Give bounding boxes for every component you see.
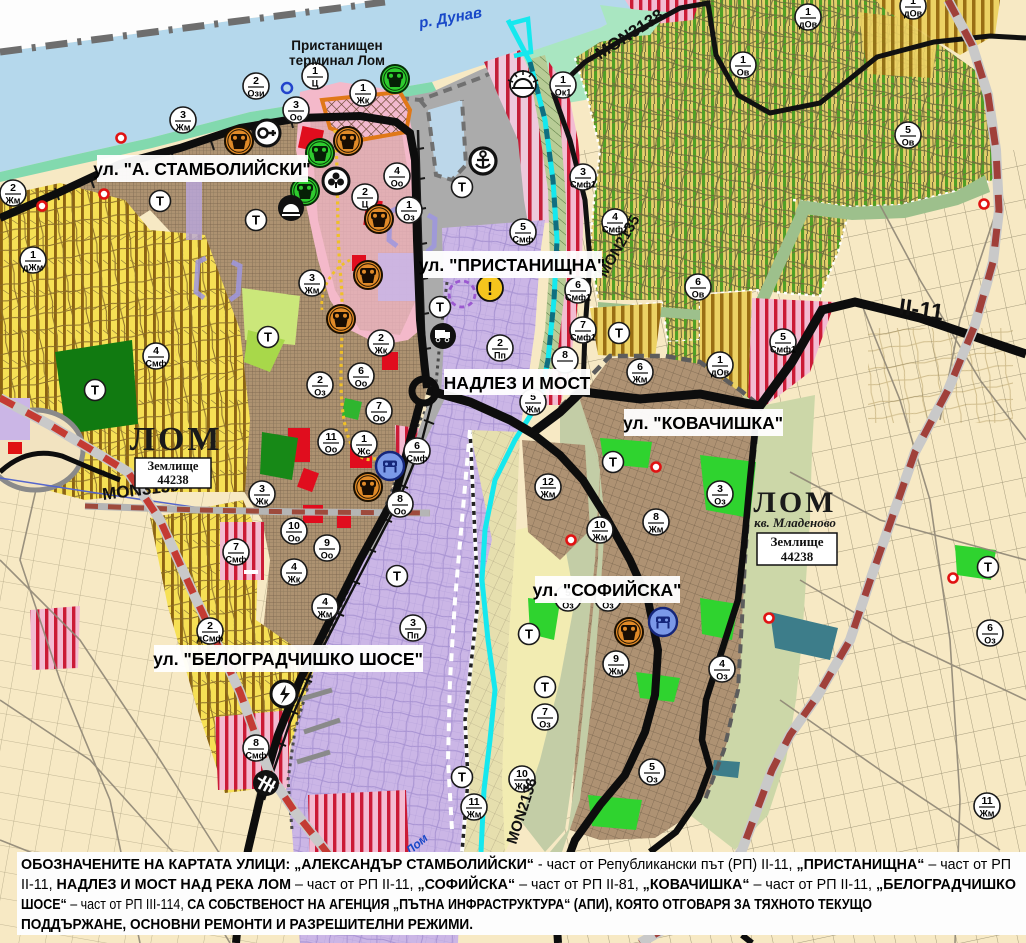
svg-text:8: 8 <box>253 737 259 749</box>
svg-text:11: 11 <box>468 796 479 808</box>
svg-text:5: 5 <box>905 124 911 136</box>
svg-text:Т: Т <box>91 383 99 398</box>
svg-text:Жм: Жм <box>540 490 556 500</box>
svg-text:6: 6 <box>414 440 420 452</box>
svg-text:Смф1: Смф1 <box>770 345 796 355</box>
svg-text:Оз: Оз <box>314 388 326 398</box>
svg-text:Ов: Ов <box>737 68 750 78</box>
svg-text:Оз: Оз <box>716 672 728 682</box>
svg-text:Ов: Ов <box>902 138 915 148</box>
svg-text:Оз: Оз <box>984 636 996 646</box>
svg-text:1: 1 <box>360 82 366 94</box>
svg-text:Т: Т <box>393 569 401 584</box>
svg-text:6: 6 <box>987 622 993 634</box>
svg-text:2: 2 <box>497 337 503 349</box>
svg-text:2: 2 <box>378 332 384 344</box>
svg-text:Жм: Жм <box>979 809 995 819</box>
svg-text:3: 3 <box>180 109 186 121</box>
svg-text:2: 2 <box>253 75 259 87</box>
svg-text:Смф1: Смф1 <box>570 333 596 343</box>
svg-text:11: 11 <box>325 431 336 443</box>
svg-text:44238: 44238 <box>781 549 814 564</box>
svg-text:Землище: Землище <box>770 534 823 549</box>
svg-text:7: 7 <box>233 541 239 553</box>
svg-text:Смф1: Смф1 <box>570 180 596 190</box>
svg-text:Пристанищен: Пристанищен <box>291 38 382 53</box>
svg-text:8: 8 <box>562 349 568 361</box>
svg-text:кв. Младеново: кв. Младеново <box>754 515 836 530</box>
svg-text:дСмф: дСмф <box>197 634 224 644</box>
svg-text:ПОДДЪРЖАНЕ, ОСНОВНИ РЕМОНТИ И: ПОДДЪРЖАНЕ, ОСНОВНИ РЕМОНТИ И РАЗРЕШИТЕЛ… <box>21 916 473 933</box>
svg-text:Оо: Оо <box>373 414 386 424</box>
svg-text:8: 8 <box>397 493 403 505</box>
svg-text:Смф1: Смф1 <box>565 293 591 303</box>
svg-text:дОв: дОв <box>711 368 730 378</box>
svg-text:Землище: Землище <box>148 459 199 473</box>
svg-text:Ози: Ози <box>247 89 264 99</box>
svg-text:5: 5 <box>520 221 526 233</box>
svg-text:ЛОМ: ЛОМ <box>130 421 223 458</box>
svg-text:12: 12 <box>542 476 554 488</box>
svg-text:3: 3 <box>259 483 265 495</box>
svg-text:Т: Т <box>984 560 992 575</box>
svg-text:7: 7 <box>580 319 586 331</box>
svg-text:Оз: Оз <box>646 775 658 785</box>
svg-text:!: ! <box>487 279 493 299</box>
svg-text:8: 8 <box>653 511 659 523</box>
svg-text:7: 7 <box>376 400 382 412</box>
svg-text:Оо: Оо <box>290 113 303 123</box>
svg-text:Ок1: Ок1 <box>555 88 572 98</box>
svg-text:1: 1 <box>560 74 566 86</box>
svg-text:Ц: Ц <box>362 200 369 210</box>
svg-text:Оо: Оо <box>325 445 338 455</box>
svg-text:Оо: Оо <box>288 534 301 544</box>
svg-text:дОв: дОв <box>904 9 923 19</box>
svg-text:Оо: Оо <box>391 179 404 189</box>
svg-text:Жм: Жм <box>466 810 482 820</box>
svg-text:Т: Т <box>609 455 617 470</box>
svg-text:Смф: Смф <box>246 751 267 761</box>
svg-text:1: 1 <box>910 0 916 7</box>
svg-text:дОв: дОв <box>799 20 818 30</box>
svg-text:Жк: Жк <box>356 96 370 106</box>
svg-text:Т: Т <box>252 213 260 228</box>
svg-text:1: 1 <box>361 433 367 445</box>
svg-text:дЖм: дЖм <box>23 263 44 273</box>
svg-text:Т: Т <box>156 194 164 209</box>
svg-text:Смф: Смф <box>146 359 167 369</box>
svg-text:терминал Лом: терминал Лом <box>289 53 385 68</box>
svg-text:10: 10 <box>594 519 606 531</box>
svg-text:Т: Т <box>458 180 466 195</box>
svg-text:Пп: Пп <box>494 351 506 361</box>
svg-text:Оз: Оз <box>714 497 726 507</box>
svg-text:Оз: Оз <box>403 213 415 223</box>
svg-text:3: 3 <box>293 99 299 111</box>
svg-text:2: 2 <box>207 620 213 632</box>
svg-text:ул. "БЕЛОГРАДЧИШКО ШОСЕ": ул. "БЕЛОГРАДЧИШКО ШОСЕ" <box>153 649 423 669</box>
svg-text:2: 2 <box>362 186 368 198</box>
svg-text:6: 6 <box>637 361 643 373</box>
svg-text:ул. "А. СТАМБОЛИЙСКИ": ул. "А. СТАМБОЛИЙСКИ" <box>93 158 310 179</box>
svg-text:Смф: Смф <box>407 454 428 464</box>
svg-text:2: 2 <box>317 374 323 386</box>
svg-text:Жм: Жм <box>648 525 664 535</box>
svg-text:4: 4 <box>153 345 159 357</box>
svg-text:Т: Т <box>264 330 272 345</box>
svg-text:ОБОЗНАЧЕНИТЕ НА КАРТАТА УЛИЦИ:: ОБОЗНАЧЕНИТЕ НА КАРТАТА УЛИЦИ: „АЛЕКСАНД… <box>21 855 1011 873</box>
svg-text:1: 1 <box>30 249 36 261</box>
svg-text:1: 1 <box>740 54 746 66</box>
svg-text:Оо: Оо <box>321 551 334 561</box>
svg-text:Жм: Жм <box>5 196 21 206</box>
svg-text:9: 9 <box>613 653 619 665</box>
svg-text:Т: Т <box>525 627 533 642</box>
svg-text:Жм: Жм <box>317 610 333 620</box>
svg-text:Оз: Оз <box>539 720 551 730</box>
svg-text:6: 6 <box>575 279 581 291</box>
svg-text:ул. "СОФИЙСКА": ул. "СОФИЙСКА" <box>533 579 682 600</box>
svg-text:7: 7 <box>542 706 548 718</box>
svg-text:4: 4 <box>612 211 618 223</box>
svg-text:ул. "КОВАЧИШКА": ул. "КОВАЧИШКА" <box>623 413 783 433</box>
svg-text:44238: 44238 <box>157 473 188 487</box>
svg-text:3: 3 <box>309 272 315 284</box>
svg-text:ул. "ПРИСТАНИЩНА": ул. "ПРИСТАНИЩНА" <box>419 255 606 275</box>
svg-text:II-11, НАДЛЕЗ И МОСТ НАД РЕКА: II-11, НАДЛЕЗ И МОСТ НАД РЕКА ЛОМ – част… <box>21 875 1016 893</box>
svg-text:Жк: Жк <box>287 575 301 585</box>
svg-text:3: 3 <box>580 166 586 178</box>
svg-text:Т: Т <box>436 300 444 315</box>
svg-text:Жм: Жм <box>525 405 541 415</box>
svg-text:Жм: Жм <box>632 375 648 385</box>
svg-text:НАДЛЕЗ И МОСТ: НАДЛЕЗ И МОСТ <box>444 373 591 393</box>
svg-text:Смф: Смф <box>226 555 247 565</box>
svg-text:Т: Т <box>541 680 549 695</box>
svg-text:4: 4 <box>291 561 297 573</box>
svg-text:4: 4 <box>719 658 725 670</box>
svg-text:1: 1 <box>406 199 412 211</box>
svg-text:6: 6 <box>695 276 701 288</box>
svg-text:Жм: Жм <box>608 667 624 677</box>
svg-text:Жм: Жм <box>175 123 191 133</box>
svg-text:10: 10 <box>288 520 300 532</box>
svg-text:Оо: Оо <box>394 507 407 517</box>
svg-text:1: 1 <box>805 6 811 18</box>
svg-text:4: 4 <box>394 165 400 177</box>
svg-text:ШОСЕ“ – част от РП III-114, СА: ШОСЕ“ – част от РП III-114, СА СОБСТВЕНО… <box>21 896 872 913</box>
svg-text:Жм: Жм <box>304 286 320 296</box>
svg-text:Смф: Смф <box>513 235 534 245</box>
svg-text:Жк: Жк <box>374 346 388 356</box>
svg-text:6: 6 <box>358 365 364 377</box>
svg-text:5: 5 <box>780 331 786 343</box>
svg-text:Жк: Жк <box>255 497 269 507</box>
svg-text:Ц: Ц <box>312 79 319 89</box>
svg-text:Пп: Пп <box>407 631 419 641</box>
svg-text:Оо: Оо <box>355 379 368 389</box>
svg-text:1: 1 <box>717 354 723 366</box>
svg-text:4: 4 <box>322 596 328 608</box>
svg-text:9: 9 <box>324 537 330 549</box>
svg-text:Жс: Жс <box>356 447 370 457</box>
svg-text:5: 5 <box>649 761 655 773</box>
svg-text:Ов: Ов <box>692 290 705 300</box>
svg-text:11: 11 <box>981 795 992 807</box>
svg-text:Т: Т <box>615 326 623 341</box>
svg-text:3: 3 <box>717 483 723 495</box>
svg-text:Жм: Жм <box>592 533 608 543</box>
svg-text:3: 3 <box>410 617 416 629</box>
svg-text:Т: Т <box>458 770 466 785</box>
svg-text:2: 2 <box>10 182 16 194</box>
